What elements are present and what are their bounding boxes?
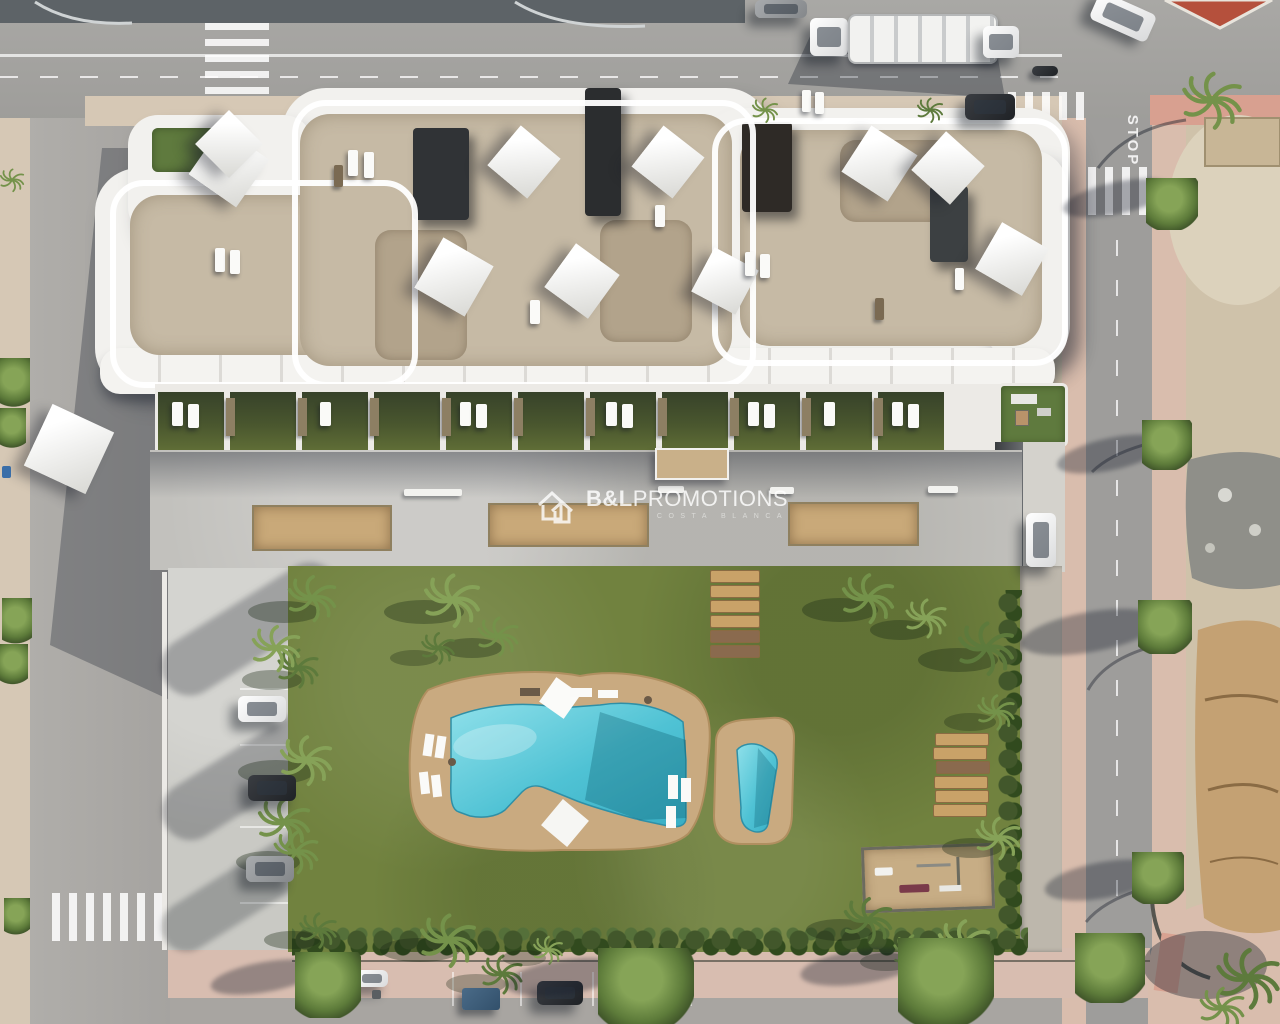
- watermark-text: B&LPROMOTIONS COSTA BLANCA: [586, 488, 788, 520]
- palm-tree: [1184, 74, 1239, 128]
- brand-logo-icon: [536, 488, 580, 528]
- watermark: B&LPROMOTIONS COSTA BLANCA: [536, 488, 788, 528]
- aerial-render-scene: STOP B&LPROMOTIONS COSTA BLANCA: [0, 0, 1280, 1024]
- palm-tree: [1219, 950, 1278, 1007]
- brand-rest: PROMOTIONS: [633, 486, 788, 511]
- brand-bold: B&L: [586, 486, 633, 511]
- brand-name: B&LPROMOTIONS: [586, 488, 788, 510]
- brand-subtitle: COSTA BLANCA: [586, 513, 788, 520]
